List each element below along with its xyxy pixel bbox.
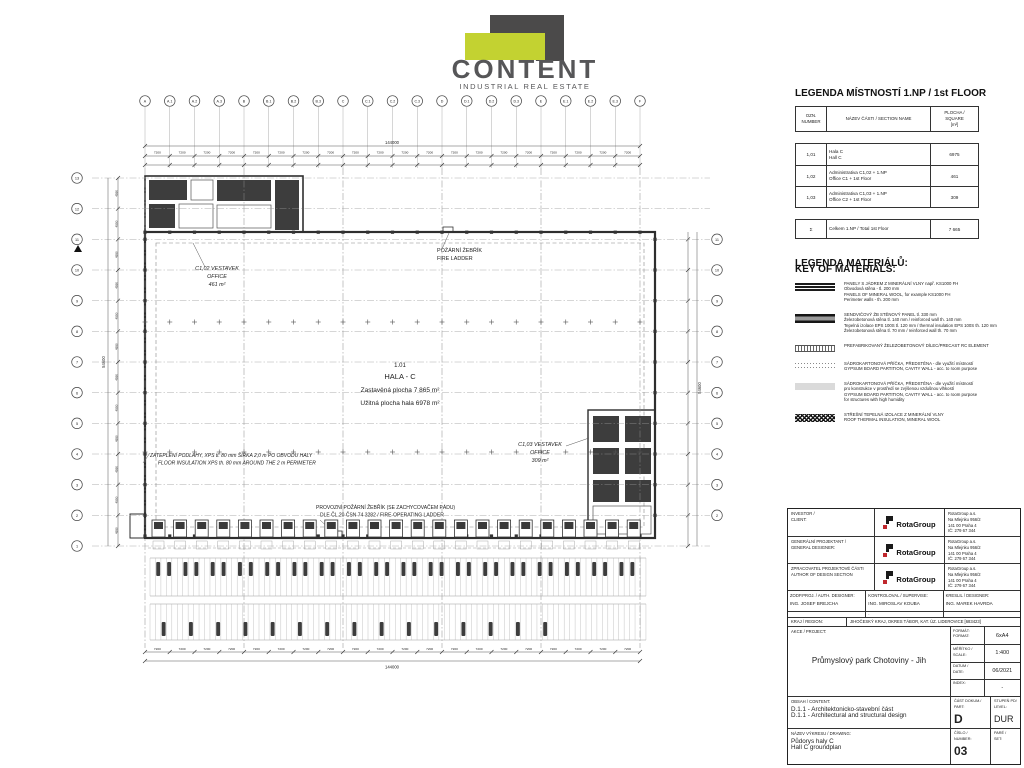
svg-text:54600: 54600: [101, 356, 106, 368]
room-row: 1,02 Administrativa C1,02 + 1.NPOffice C…: [796, 165, 978, 186]
svg-text:10: 10: [75, 269, 79, 273]
svg-text:1: 1: [76, 545, 78, 549]
svg-text:4: 4: [76, 453, 78, 457]
format-value: 6xA4: [984, 627, 1020, 644]
rotagroup-mark-icon: [883, 516, 894, 529]
svg-text:7200: 7200: [302, 647, 309, 651]
svg-text:8: 8: [716, 330, 718, 334]
svg-text:7: 7: [716, 361, 718, 365]
svg-text:7200: 7200: [575, 151, 582, 155]
material-description: PREFABRIKOVANÝ ŽELEZOBETONOVÝ DÍLEC/PREC…: [844, 343, 989, 352]
svg-text:7200: 7200: [401, 647, 408, 651]
drawing-number: 03: [954, 744, 987, 758]
region-label: KRAJ / REGION:: [788, 618, 846, 625]
supervisor-name: ING. MIROSLAV KOUBA: [868, 601, 940, 606]
svg-text:C.1: C.1: [365, 100, 371, 104]
content-cell: OBSAH / CONTENT: D.1.1 - Architektonicko…: [788, 697, 950, 728]
material-description: SÁDROKARTONOVÁ PŘÍČKA, PŘEDSTĚNA - dle v…: [844, 361, 977, 372]
svg-text:7: 7: [76, 361, 78, 365]
material-item: SENDVIČOVÝ ŽB STĚNOVÝ PANEL tl. 330 mmŽe…: [795, 312, 1023, 334]
format-row: FORMÁT:FORMAT: 6xA4: [951, 627, 1020, 644]
svg-text:3: 3: [76, 483, 78, 487]
index-value: -: [984, 680, 1020, 696]
svg-text:7200: 7200: [525, 647, 532, 651]
svg-text:7200: 7200: [550, 647, 557, 651]
general-designer-label: GENERÁLNÍ PROJEKTANT /GENERAL DESIGNER:: [788, 537, 874, 563]
svg-text:7200: 7200: [228, 151, 235, 155]
rotagroup-logo: RotaGroup: [874, 537, 944, 563]
project-name: Průmyslový park Chotoviny - Jih: [791, 656, 947, 665]
svg-text:4550: 4550: [115, 282, 119, 289]
svg-text:4550: 4550: [115, 466, 119, 473]
drawing-name-lines: Půdorys haly CHall C groundplan: [791, 739, 947, 751]
svg-text:7200: 7200: [451, 151, 458, 155]
svg-text:7200: 7200: [476, 151, 483, 155]
svg-text:A.2: A.2: [192, 100, 197, 104]
material-description: STŘEŠNÍ TEPELNÁ IZOLACE Z MINERÁLNÍ VLNY…: [844, 412, 944, 423]
svg-text:11: 11: [715, 238, 719, 242]
material-item: STŘEŠNÍ TEPELNÁ IZOLACE Z MINERÁLNÍ VLNY…: [795, 412, 1023, 423]
svg-text:7200: 7200: [352, 151, 359, 155]
svg-text:C.2: C.2: [390, 100, 396, 104]
svg-text:7200: 7200: [203, 151, 210, 155]
svg-text:54600: 54600: [697, 382, 702, 394]
gypsum-partition-humid-symbol: [795, 383, 835, 390]
investor-row: INVESTOR /CLIENT: RotaGroup RotaGroup a.…: [788, 509, 1020, 536]
material-description: PANELY S JÁDREM Z MINERÁLNÍ VLNY např. K…: [844, 281, 958, 303]
project-label: AKCE / PROJECT:: [791, 629, 947, 634]
hall-usable-area: Užitná plocha hala 6978 m²: [360, 400, 440, 407]
office1-area: 461 m²: [209, 282, 226, 288]
auth-designer-cell: ZODP.PROJ. / AUTH. DESIGNER: ING. JOSEF …: [788, 591, 865, 611]
content-row: OBSAH / CONTENT: D.1.1 - Architektonicko…: [788, 696, 1020, 728]
room-legend-rows: 1,01 Hala CHall C 6975 1,02 Administrati…: [795, 143, 979, 208]
floor-plan-drawing: 1.01 HALA - C Zastavěná plocha 7 865 m² …: [0, 0, 790, 768]
svg-text:7200: 7200: [228, 647, 235, 651]
materials-legend-title: LEGENDA MATERIÁLŮ:KEY OF MATERIALS:: [795, 261, 1023, 273]
region-row: KRAJ / REGION: JIHOČESKÝ KRAJ, OKRES TÁB…: [788, 617, 1020, 626]
fire-ladder-label: POŽÁRNÍ ŽEBŘÍK FIRE LADDER: [437, 246, 482, 262]
project-cell: AKCE / PROJECT: Průmyslový park Chotovin…: [788, 627, 950, 696]
author-address: RotaGroup a.s.Na Mlejnku 956/2141 00 Pra…: [944, 564, 1020, 590]
col-name: NÁZEV ČÁSTI / SECTION NAME: [826, 107, 930, 131]
people-row: ZODP.PROJ. / AUTH. DESIGNER: ING. JOSEF …: [788, 590, 1020, 611]
svg-text:E.1: E.1: [563, 100, 568, 104]
client-address: RotaGroup a.s.Na Mlejnku 956/2141 00 Pra…: [944, 509, 1020, 536]
insulation-en: FLOOR INSULATION XPS th. 80 mm AROUND TH…: [158, 461, 316, 467]
col-area: PLOCHA /SQUARE[m²]: [930, 107, 978, 131]
svg-text:7200: 7200: [624, 647, 631, 651]
svg-text:7200: 7200: [179, 151, 186, 155]
room-name: Hala CHall C: [826, 144, 930, 165]
author-row: ZPRACOVATEL PROJEKTOVÉ ČÁSTIAUTHOR OF DE…: [788, 563, 1020, 590]
office2-area: 309 m²: [532, 458, 549, 464]
svg-text:7200: 7200: [500, 647, 507, 651]
general-designer-row: GENERÁLNÍ PROJEKTANT /GENERAL DESIGNER: …: [788, 536, 1020, 563]
title-block: INVESTOR /CLIENT: RotaGroup RotaGroup a.…: [787, 508, 1021, 765]
rotagroup-logo: RotaGroup: [874, 509, 944, 536]
svg-text:4550: 4550: [115, 343, 119, 350]
svg-text:7200: 7200: [179, 647, 186, 651]
svg-text:4: 4: [716, 453, 718, 457]
rotagroup-mark-icon: [883, 544, 894, 557]
room-number: 1,02: [796, 166, 826, 186]
svg-text:7200: 7200: [599, 151, 606, 155]
room-legend-total: Σ Celkem 1.NP / Total 1st Floor 7 665: [795, 219, 979, 239]
office1-id: C1,02 VESTAVEK: [195, 266, 239, 272]
room-area: 6975: [930, 144, 978, 165]
op-ladder-cz: PROVOZNÍ POŽÁRNÍ ŽEBŘÍK (SE ZACHYCOVAČEM…: [316, 503, 455, 511]
svg-text:7200: 7200: [426, 151, 433, 155]
svg-text:4550: 4550: [115, 527, 119, 534]
svg-text:7200: 7200: [154, 647, 161, 651]
svg-text:7200: 7200: [278, 647, 285, 651]
material-description: SÁDROKARTONOVÁ PŘÍČKA, PŘEDSTĚNA - dle v…: [844, 381, 977, 403]
svg-text:7200: 7200: [278, 151, 285, 155]
col-number: OZN.NUMBER: [796, 107, 826, 131]
svg-text:C: C: [342, 100, 345, 104]
svg-text:6: 6: [76, 391, 78, 395]
legend-column: LEGENDA MÍSTNOSTÍ 1.NP / 1st FLOOR OZN.N…: [795, 88, 1023, 432]
svg-text:8: 8: [76, 330, 78, 334]
svg-text:7200: 7200: [426, 647, 433, 651]
svg-text:9: 9: [716, 299, 718, 303]
level-value: DUR: [994, 714, 1017, 724]
number-cell: ČÍSLO /NUMBER: 03: [950, 729, 990, 764]
part-cell: ČÁST DOKUM./PART: D: [950, 697, 990, 728]
svg-text:6: 6: [716, 391, 718, 395]
svg-text:7200: 7200: [525, 151, 532, 155]
room-legend-header: OZN.NUMBER NÁZEV ČÁSTI / SECTION NAME PL…: [795, 106, 979, 132]
rotagroup-logo: RotaGroup: [874, 564, 944, 590]
room-legend-title: LEGENDA MÍSTNOSTÍ 1.NP / 1st FLOOR: [795, 88, 1023, 99]
svg-text:E.3: E.3: [613, 100, 618, 104]
svg-text:7200: 7200: [500, 151, 507, 155]
insulation-note: ZATEPLENÍ PODLAHY, XPS tl. 80 mm ŠÍŘKA 2…: [149, 451, 316, 467]
svg-text:E.2: E.2: [588, 100, 593, 104]
drafter-name: ING. MAREK HAVRDA: [946, 601, 1018, 606]
material-description: SENDVIČOVÝ ŽB STĚNOVÝ PANEL tl. 330 mmŽe…: [844, 312, 997, 334]
svg-text:B.1: B.1: [266, 100, 271, 104]
hall-name: HALA - C: [384, 372, 416, 381]
total-sigma: Σ: [796, 220, 826, 238]
svg-text:7200: 7200: [575, 647, 582, 651]
svg-text:144000: 144000: [385, 140, 400, 145]
hall-number: 1.01: [394, 363, 406, 369]
svg-text:4550: 4550: [115, 496, 119, 503]
room-area: 461: [930, 166, 978, 186]
svg-text:4550: 4550: [115, 374, 119, 381]
mineral-wool-panel-lines-symbol: [795, 283, 835, 285]
svg-text:7200: 7200: [352, 647, 359, 651]
svg-text:4550: 4550: [115, 190, 119, 197]
region-value: JIHOČESKÝ KRAJ, OKRES TÁBOR, KAT. ÚZ. LI…: [846, 618, 1020, 625]
gypsum-partition-dotted-symbol: [795, 363, 835, 370]
svg-text:D: D: [441, 100, 444, 104]
svg-text:3: 3: [716, 483, 718, 487]
materials-legend: PANELY S JÁDREM Z MINERÁLNÍ VLNY např. K…: [795, 281, 1023, 423]
svg-text:4550: 4550: [115, 312, 119, 319]
svg-text:7200: 7200: [327, 647, 334, 651]
material-item: PANELY S JÁDREM Z MINERÁLNÍ VLNY např. K…: [795, 281, 1023, 303]
material-item: SÁDROKARTONOVÁ PŘÍČKA, PŘEDSTĚNA - dle v…: [795, 361, 1023, 372]
svg-text:4550: 4550: [115, 220, 119, 227]
room-name: Administrativa C1,03 + 1.NPOffice C2 + 1…: [826, 187, 930, 207]
hall-label: 1.01 HALA - C Zastavěná plocha 7 865 m² …: [360, 363, 440, 407]
office2-name: OFFICE: [530, 450, 550, 456]
section-arrow: [74, 245, 82, 252]
insulation-cz: ZATEPLENÍ PODLAHY, XPS tl. 80 mm ŠÍŘKA 2…: [149, 451, 313, 459]
drawing-row: NÁZEV VÝKRESU / DRAWING: Půdorys haly CH…: [788, 728, 1020, 764]
office2-label: C1,03 VESTAVEK OFFICE 309 m²: [518, 442, 562, 464]
svg-text:7200: 7200: [377, 647, 384, 651]
svg-text:7200: 7200: [451, 647, 458, 651]
precast-rc-hatch-symbol: [795, 345, 835, 352]
level-cell: STUPEŇ PD/LEVEL: DUR: [990, 697, 1020, 728]
room-row: 1,01 Hala CHall C 6975: [796, 144, 978, 165]
fire-ladder-en: FIRE LADDER: [437, 256, 473, 262]
scale-row: MĚŘÍTKO /SCALE: 1:400: [951, 644, 1020, 661]
drawing-cell: NÁZEV VÝKRESU / DRAWING: Půdorys haly CH…: [788, 729, 950, 764]
designer-address: RotaGroup a.s.Na Mlejnku 956/2141 00 Pra…: [944, 537, 1020, 563]
scale-value: 1:400: [984, 645, 1020, 661]
svg-text:4550: 4550: [115, 404, 119, 411]
svg-text:7200: 7200: [476, 647, 483, 651]
fire-ladder-cz: POŽÁRNÍ ŽEBŘÍK: [437, 246, 482, 254]
total-area: 7 665: [930, 220, 978, 238]
fire-ladder-marks: [332, 227, 453, 537]
svg-text:11: 11: [75, 238, 79, 242]
svg-text:5: 5: [716, 422, 718, 426]
svg-text:7200: 7200: [203, 647, 210, 651]
date-row: DATUM /DATE: 06/2021: [951, 662, 1020, 679]
svg-text:D.3: D.3: [513, 100, 519, 104]
svg-text:9: 9: [76, 299, 78, 303]
set-cell: PARÉ /SET:: [990, 729, 1020, 764]
svg-text:7200: 7200: [302, 151, 309, 155]
op-ladder-en: DLE ČL.20 ČSN 74 3282 / FIRE-OPERATING L…: [320, 512, 444, 519]
svg-text:A.3: A.3: [217, 100, 222, 104]
auth-designer-name: ING. JOSEF BREJCHA: [790, 601, 863, 606]
roof-insulation-crosshatch-symbol: [795, 414, 835, 422]
svg-text:5: 5: [76, 422, 78, 426]
room-row: 1,03 Administrativa C1,03 + 1.NPOffice C…: [796, 186, 978, 207]
svg-text:D.1: D.1: [464, 100, 470, 104]
date-value: 06/2021: [984, 663, 1020, 679]
svg-text:4550: 4550: [115, 435, 119, 442]
thin-row: ·: [788, 611, 1020, 617]
svg-text:7200: 7200: [327, 151, 334, 155]
room-area: 309: [930, 187, 978, 207]
material-item: PREFABRIKOVANÝ ŽELEZOBETONOVÝ DÍLEC/PREC…: [795, 343, 1023, 352]
format-scale-date-index: FORMÁT:FORMAT: 6xA4 MĚŘÍTKO /SCALE: 1:40…: [950, 627, 1020, 696]
room-number: 1,01: [796, 144, 826, 165]
svg-text:7200: 7200: [253, 647, 260, 651]
drafter-cell: KRESLIL / DESIGNER: ING. MAREK HAVRDA: [943, 591, 1020, 611]
svg-text:A.1: A.1: [167, 100, 172, 104]
svg-text:2: 2: [76, 514, 78, 518]
svg-text:7200: 7200: [253, 151, 260, 155]
svg-text:7200: 7200: [550, 151, 557, 155]
content-lines: D.1.1 - Architektonicko-stavební částD.1…: [791, 707, 947, 719]
svg-text:C.3: C.3: [414, 100, 420, 104]
svg-text:B.2: B.2: [291, 100, 296, 104]
rotagroup-mark-icon: [883, 571, 894, 584]
sandwich-rc-panel-symbol: [795, 314, 835, 323]
supervisor-cell: KONTROLOVAL / SUPERVISE: ING. MIROSLAV K…: [865, 591, 942, 611]
svg-text:7200: 7200: [401, 151, 408, 155]
svg-text:7200: 7200: [624, 151, 631, 155]
svg-text:7200: 7200: [377, 151, 384, 155]
svg-text:144000: 144000: [385, 665, 400, 670]
svg-text:2: 2: [716, 514, 718, 518]
svg-text:12: 12: [75, 207, 79, 211]
svg-text:7200: 7200: [154, 151, 161, 155]
material-item: SÁDROKARTONOVÁ PŘÍČKA, PŘEDSTĚNA - dle v…: [795, 381, 1023, 403]
total-name: Celkem 1.NP / Total 1st Floor: [826, 220, 930, 238]
operating-ladder-note: PROVOZNÍ POŽÁRNÍ ŽEBŘÍK (SE ZACHYCOVAČEM…: [316, 503, 455, 519]
room-number: 1,03: [796, 187, 826, 207]
office1-name: OFFICE: [207, 274, 227, 280]
svg-text:D.2: D.2: [489, 100, 495, 104]
part-value: D: [954, 712, 987, 726]
author-label: ZPRACOVATEL PROJEKTOVÉ ČÁSTIAUTHOR OF DE…: [788, 564, 874, 590]
svg-text:13: 13: [75, 177, 79, 181]
svg-text:7200: 7200: [599, 647, 606, 651]
hall-builtup-area: Zastavěná plocha 7 865 m²: [361, 387, 441, 394]
room-name: Administrativa C1,02 + 1.NPOffice C1 + 1…: [826, 166, 930, 186]
svg-text:10: 10: [715, 269, 719, 273]
svg-text:4550: 4550: [115, 251, 119, 258]
investor-label: INVESTOR /CLIENT:: [788, 509, 874, 536]
project-row: AKCE / PROJECT: Průmyslový park Chotovin…: [788, 626, 1020, 696]
office1-label: C1,02 VESTAVEK OFFICE 461 m²: [195, 266, 239, 288]
svg-text:B.3: B.3: [316, 100, 321, 104]
index-row: INDEX: -: [951, 679, 1020, 696]
office2-id: C1,03 VESTAVEK: [518, 442, 562, 448]
